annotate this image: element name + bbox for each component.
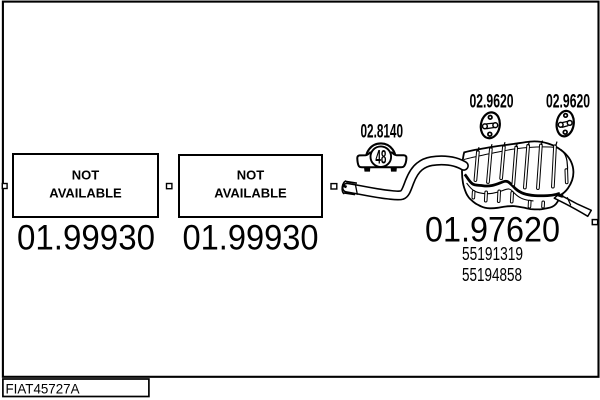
svg-text:NOT: NOT [72,168,100,183]
svg-text:02.8140: 02.8140 [361,121,404,143]
svg-text:FIAT45727A: FIAT45727A [6,380,81,396]
svg-text:AVAILABLE: AVAILABLE [214,186,287,201]
svg-text:02.9620: 02.9620 [470,91,514,112]
svg-text:AVAILABLE: AVAILABLE [49,186,122,201]
svg-text:55191319: 55191319 [462,244,523,264]
svg-text:01.99930: 01.99930 [17,218,155,258]
svg-text:55194858: 55194858 [462,265,522,285]
svg-text:02.9620: 02.9620 [546,91,590,112]
svg-text:NOT: NOT [237,168,265,183]
svg-text:48: 48 [375,147,386,169]
svg-text:01.99930: 01.99930 [183,218,319,258]
